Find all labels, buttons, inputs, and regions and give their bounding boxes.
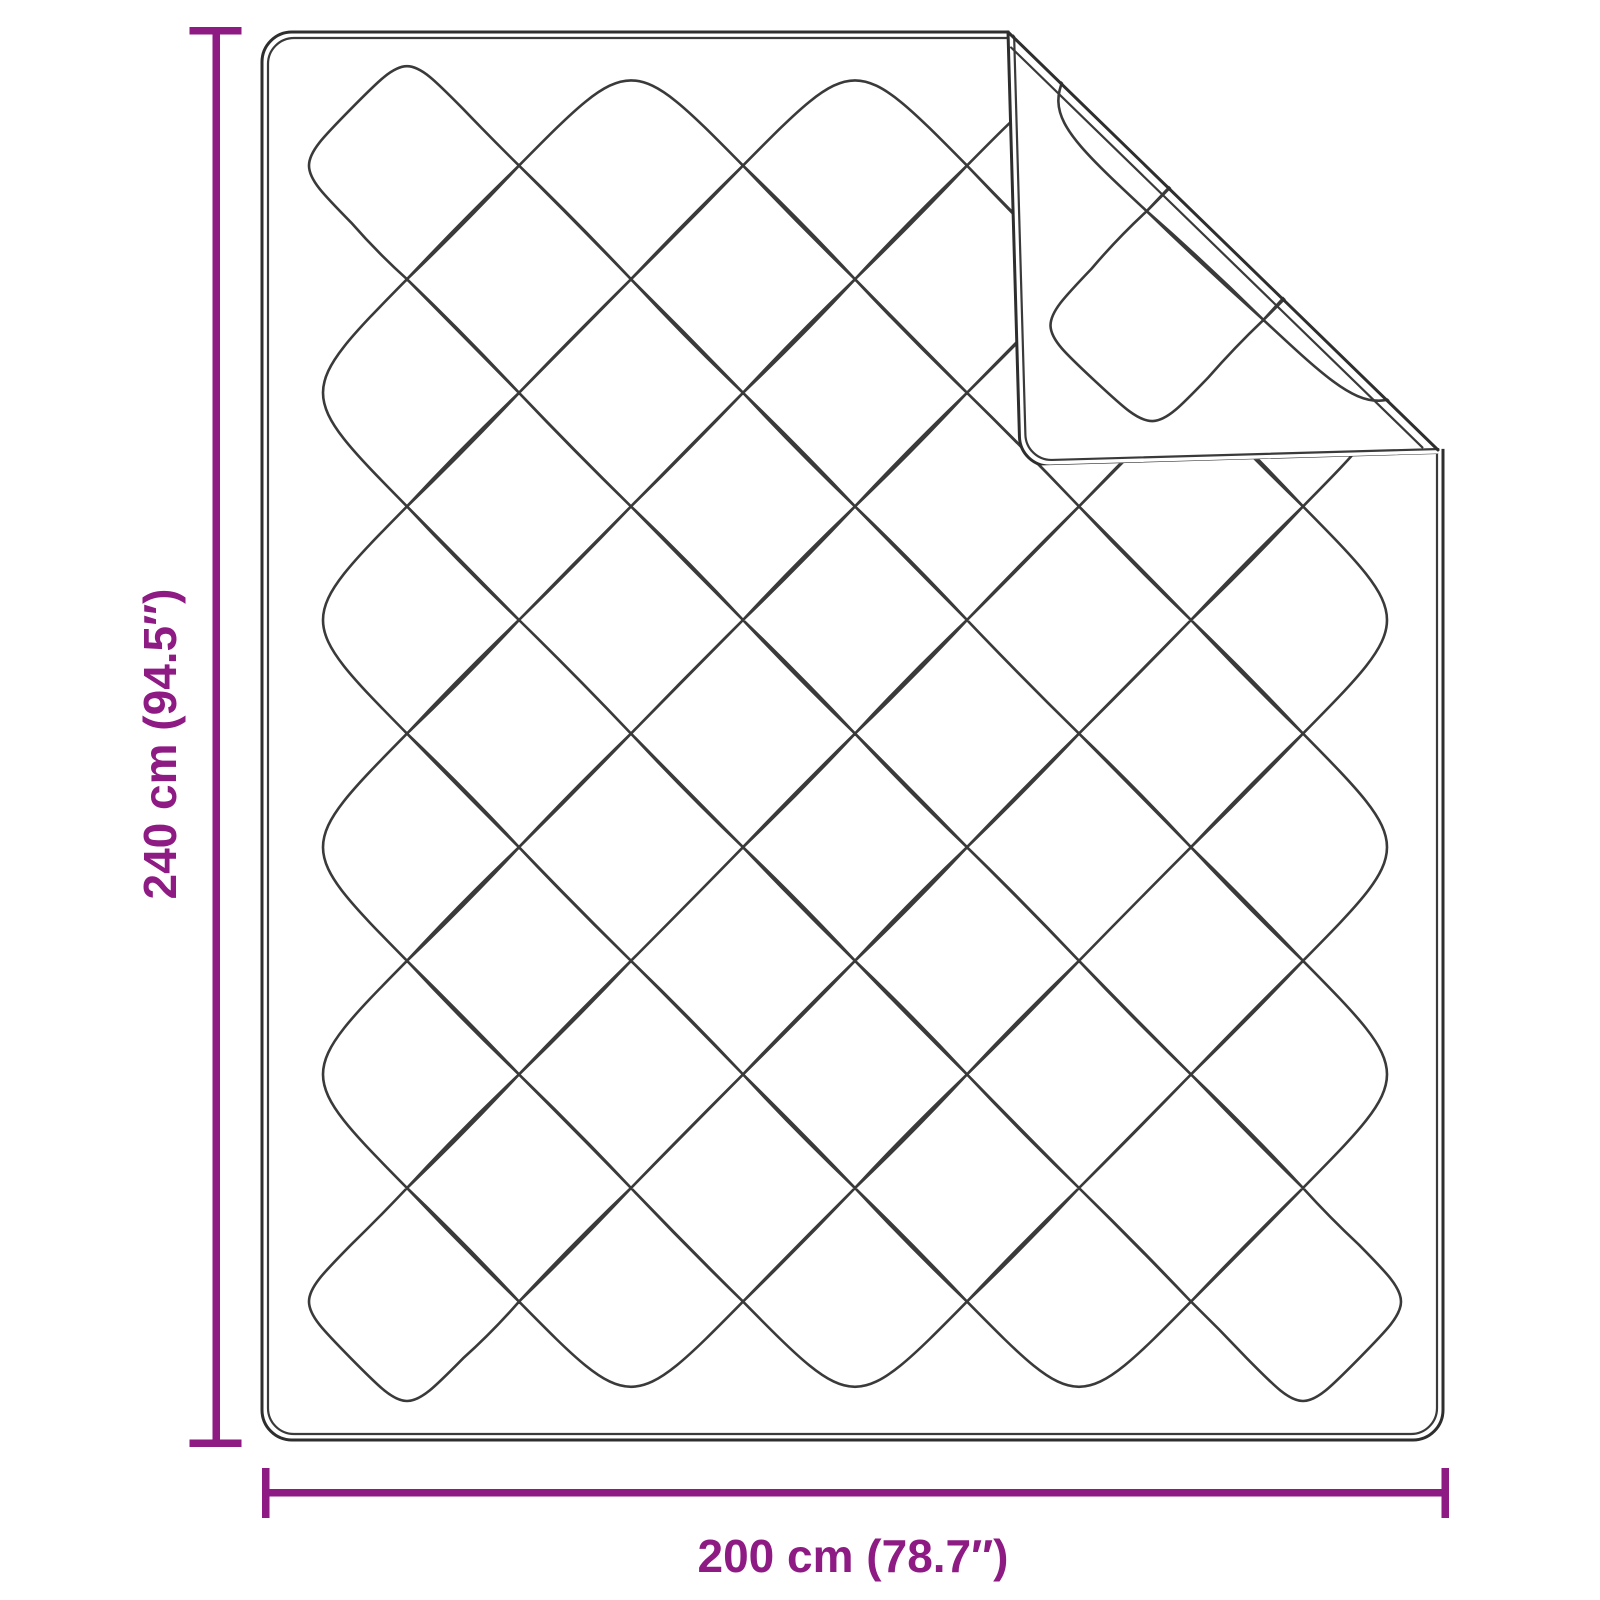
width-dimension-line xyxy=(263,1489,1446,1497)
blanket-diagram-canvas: 240 cm (94.5″) 200 cm (78.7″) xyxy=(0,0,1600,1600)
width-dimension-right-cap xyxy=(1442,1468,1450,1518)
height-dimension-line xyxy=(213,30,221,1442)
height-dimension-bottom-cap xyxy=(190,1440,242,1448)
width-dimension-left-cap xyxy=(262,1468,270,1518)
height-dimension-top-cap xyxy=(190,27,242,35)
width-dimension-label: 200 cm (78.7″) xyxy=(698,1530,1009,1582)
dimension-diagram: 240 cm (94.5″) 200 cm (78.7″) xyxy=(0,0,1600,1600)
height-dimension-label: 240 cm (94.5″) xyxy=(134,589,186,900)
